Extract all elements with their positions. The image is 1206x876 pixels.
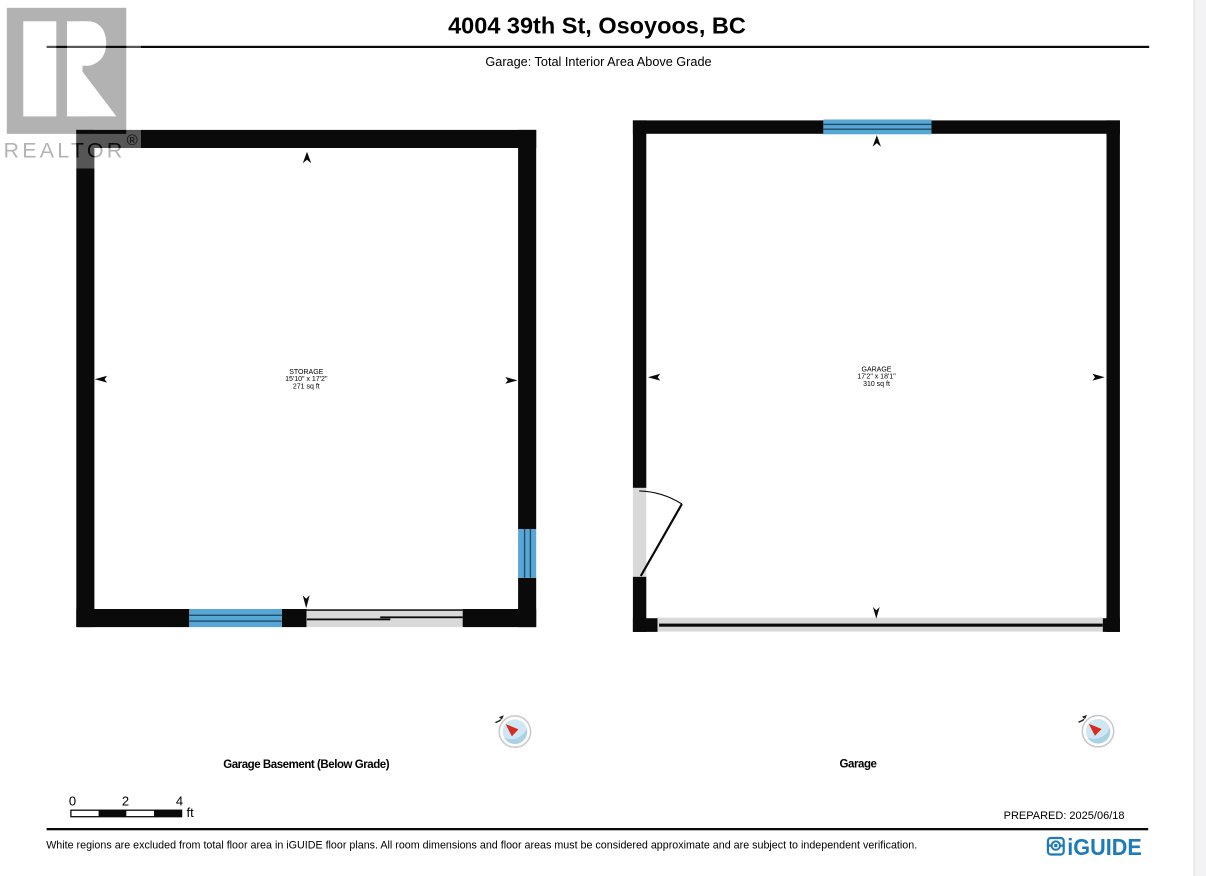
svg-text:iGUIDE: iGUIDE (1067, 834, 1142, 860)
svg-text:17'2" x 18'1": 17'2" x 18'1" (857, 374, 896, 381)
svg-text:White regions are excluded fro: White regions are excluded from total fl… (46, 840, 917, 852)
svg-text:Garage: Garage (840, 758, 877, 770)
svg-text:STORAGE: STORAGE (289, 369, 323, 376)
svg-text:REALTOR: REALTOR (4, 138, 126, 162)
svg-text:Garage: Total Interior Area Ab: Garage: Total Interior Area Above Grade (485, 55, 711, 69)
svg-text:4004 39th St, Osoyoos, BC: 4004 39th St, Osoyoos, BC (448, 13, 746, 39)
svg-text:310 sq ft: 310 sq ft (863, 381, 890, 388)
svg-text:®: ® (127, 132, 138, 149)
svg-text:ft: ft (187, 805, 195, 820)
svg-text:4: 4 (176, 794, 183, 809)
svg-text:15'10" x 17'2": 15'10" x 17'2" (285, 376, 328, 383)
svg-text:Garage Basement (Below Grade): Garage Basement (Below Grade) (223, 759, 390, 771)
svg-text:GARAGE: GARAGE (862, 367, 892, 374)
svg-text:271 sq ft: 271 sq ft (293, 383, 320, 390)
svg-text:0: 0 (69, 794, 76, 809)
svg-text:PREPARED: 2025/06/18: PREPARED: 2025/06/18 (1004, 810, 1125, 822)
svg-text:2: 2 (122, 794, 129, 809)
